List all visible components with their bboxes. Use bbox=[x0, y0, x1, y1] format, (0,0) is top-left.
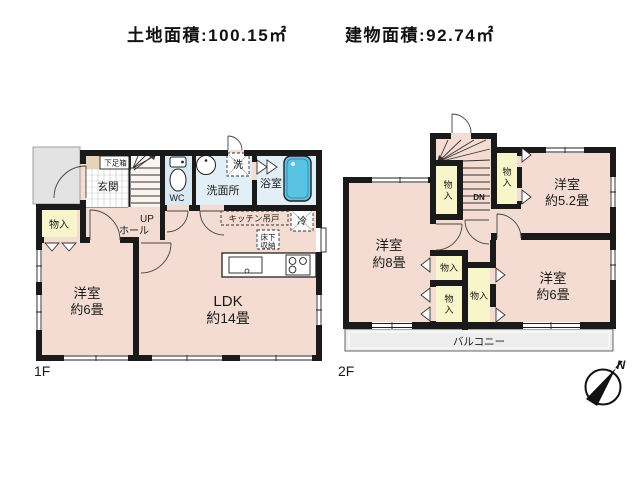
wc-label: WC bbox=[170, 193, 185, 203]
stair-top-door bbox=[452, 114, 471, 133]
compass: N bbox=[586, 358, 626, 406]
floor2-label: 2F bbox=[338, 363, 354, 379]
hall-label: ホール bbox=[119, 225, 149, 237]
closet-stair-char1: 物 bbox=[443, 179, 452, 190]
genkan-stairs-divider bbox=[129, 156, 131, 207]
western6-1f-name: 洋室 bbox=[74, 285, 101, 301]
porch bbox=[33, 147, 80, 204]
western6-2f-size: 約6畳 bbox=[536, 287, 569, 302]
floor1-label: 1F bbox=[34, 363, 50, 379]
bathtub-drain bbox=[291, 162, 295, 166]
ldk-name: LDK bbox=[213, 293, 242, 310]
western8-name: 洋室 bbox=[376, 237, 403, 253]
floorplan-page: 土地面積:100.15㎡ 建物面積:92.74㎡ bbox=[0, 0, 640, 480]
stairs-down-label: DN bbox=[473, 193, 485, 202]
compass-north-label: N bbox=[617, 358, 626, 372]
underfloor-label-2: 収納 bbox=[261, 240, 276, 250]
stairs-up-label: UP bbox=[140, 214, 154, 225]
washroom-label: 洗面所 bbox=[207, 184, 240, 197]
closet-a-label: 物入 bbox=[440, 262, 458, 273]
floor1-plan: 下足箱 玄関 WC 洗 洗面所 浴室 UP ホール 物入 洋室 約6畳 LDK … bbox=[33, 136, 326, 379]
balcony-label: バルコニー bbox=[453, 336, 505, 348]
sink-icon bbox=[197, 156, 216, 175]
kitchen-counter bbox=[222, 253, 316, 277]
western52-name: 洋室 bbox=[554, 177, 580, 192]
floor2-closet-stair bbox=[436, 166, 457, 214]
ldk-size: 約14畳 bbox=[206, 310, 250, 326]
floor1-base-lower bbox=[36, 204, 322, 361]
western6-1f-size: 約6畳 bbox=[70, 302, 103, 317]
toilet-icon bbox=[170, 157, 186, 191]
bathtub-icon bbox=[284, 156, 311, 201]
washer-label: 洗 bbox=[233, 159, 243, 171]
fridge-label: 冷 bbox=[297, 215, 307, 228]
shoebox-label: 下足箱 bbox=[104, 158, 127, 168]
closet-52-char1: 物 bbox=[502, 166, 511, 177]
closet-b-char1: 物 bbox=[444, 293, 453, 304]
closet-stair-char2: 入 bbox=[443, 191, 452, 201]
floor2-plan: 物 入 DN 物 入 洋室 約5.2畳 洋室 約8畳 洋室 約6畳 物入 物 入… bbox=[338, 114, 616, 379]
floor1-closet-label: 物入 bbox=[49, 218, 69, 231]
floor2-closet-b bbox=[436, 286, 462, 322]
stairs1-area bbox=[131, 156, 160, 207]
western8-size: 約8畳 bbox=[372, 255, 405, 270]
closet-52-char2: 入 bbox=[502, 178, 511, 188]
kitchen-sink bbox=[229, 257, 262, 273]
genkan-label: 玄関 bbox=[98, 180, 119, 193]
western52-size: 約5.2畳 bbox=[545, 193, 589, 208]
closet-c-label: 物入 bbox=[470, 290, 488, 301]
western6-2f-name: 洋室 bbox=[540, 270, 567, 286]
bathroom-label: 浴室 bbox=[260, 176, 282, 190]
floorplan-canvas: 下足箱 玄関 WC 洗 洗面所 浴室 UP ホール 物入 洋室 約6畳 LDK … bbox=[0, 0, 640, 480]
floor1-back-door-right bbox=[316, 228, 326, 252]
closet-b-char2: 入 bbox=[444, 305, 453, 315]
kitchen-cabinet-label: キッチン吊戸 bbox=[228, 214, 279, 224]
